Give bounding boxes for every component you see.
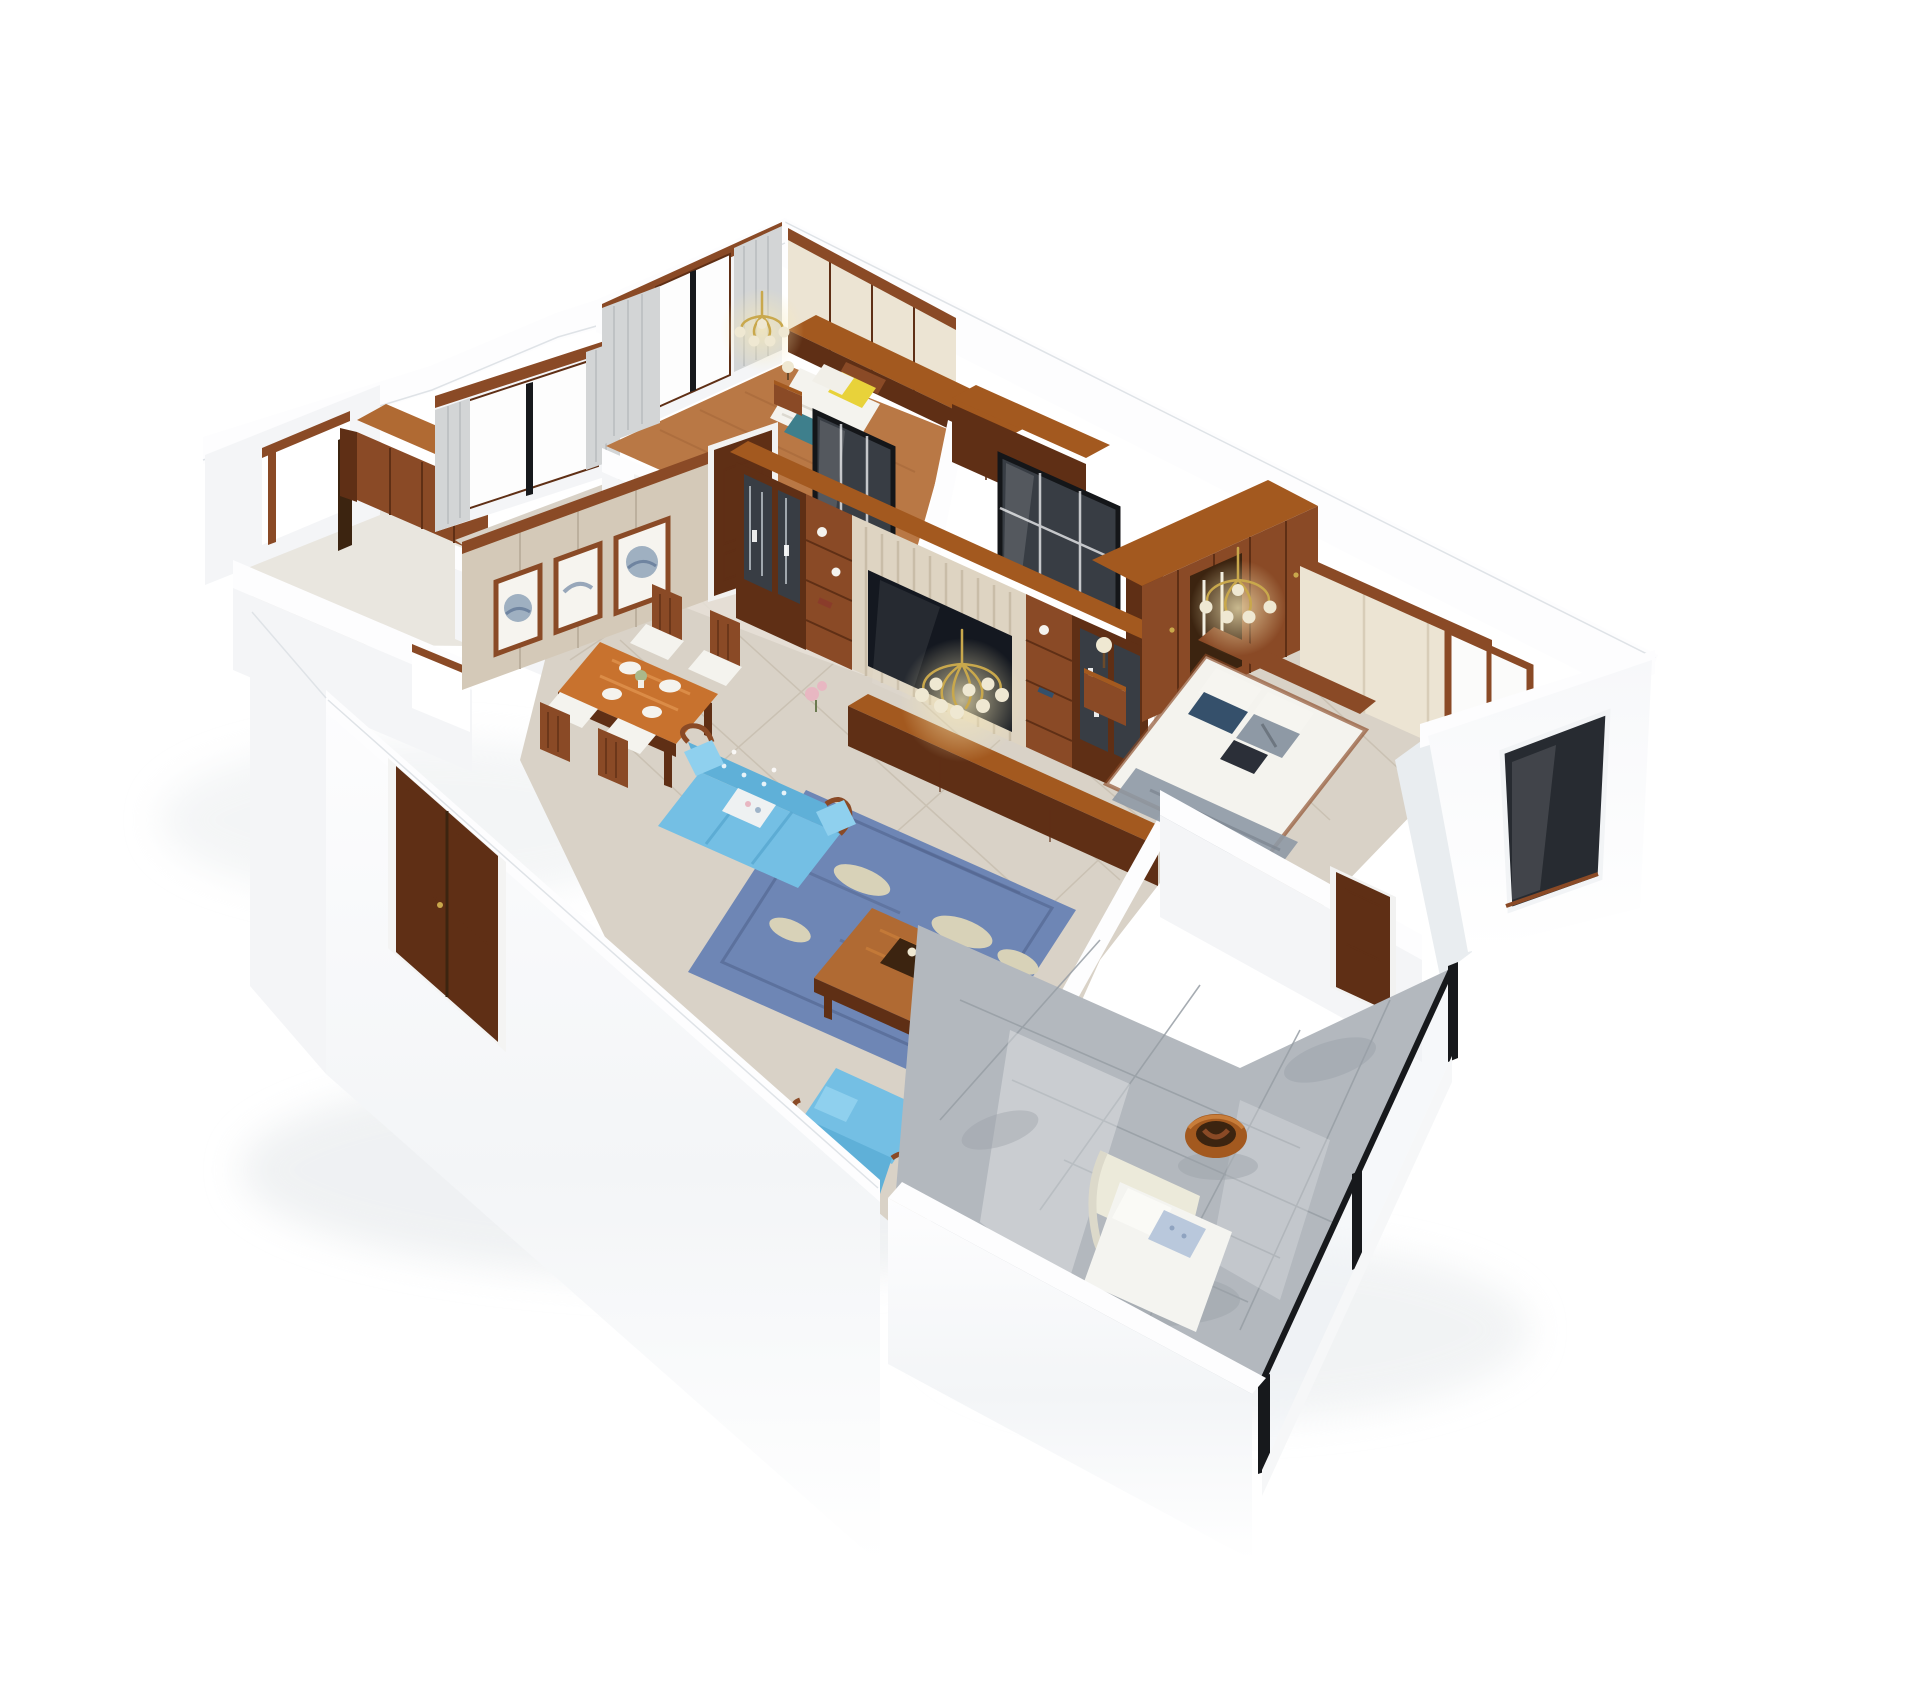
floorplan-render [0, 0, 1920, 1688]
framed-art-2 [556, 544, 600, 632]
framed-art-1 [496, 566, 540, 654]
open-shelf-left [806, 494, 852, 670]
open-shelf-right [1026, 594, 1072, 768]
bedroom2-chandelier [720, 288, 804, 372]
balcony [888, 925, 1458, 1560]
glass-display-cabinet-left [736, 462, 806, 650]
floorplan-stage: 3D isometric dollhouse rendering of a fu… [0, 0, 1920, 1688]
